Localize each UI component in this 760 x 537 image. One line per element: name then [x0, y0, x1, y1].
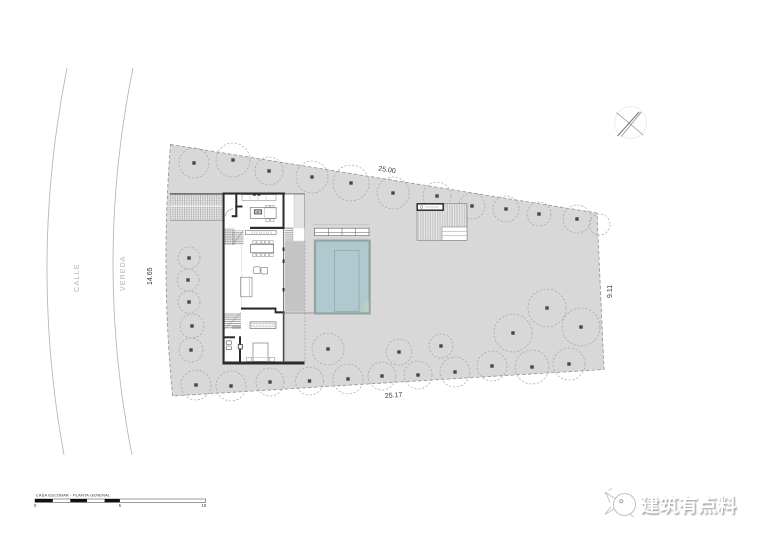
svg-text:10: 10 [202, 503, 207, 508]
svg-text:9.11: 9.11 [607, 285, 614, 298]
svg-text:VEREDA: VEREDA [118, 255, 127, 291]
svg-text:14.65: 14.65 [147, 267, 154, 285]
svg-text:CASA ESCOBAR - PLANTA GENERAL: CASA ESCOBAR - PLANTA GENERAL [36, 492, 111, 497]
svg-text:25.17: 25.17 [385, 392, 403, 400]
svg-text:CALLE: CALLE [72, 263, 81, 292]
